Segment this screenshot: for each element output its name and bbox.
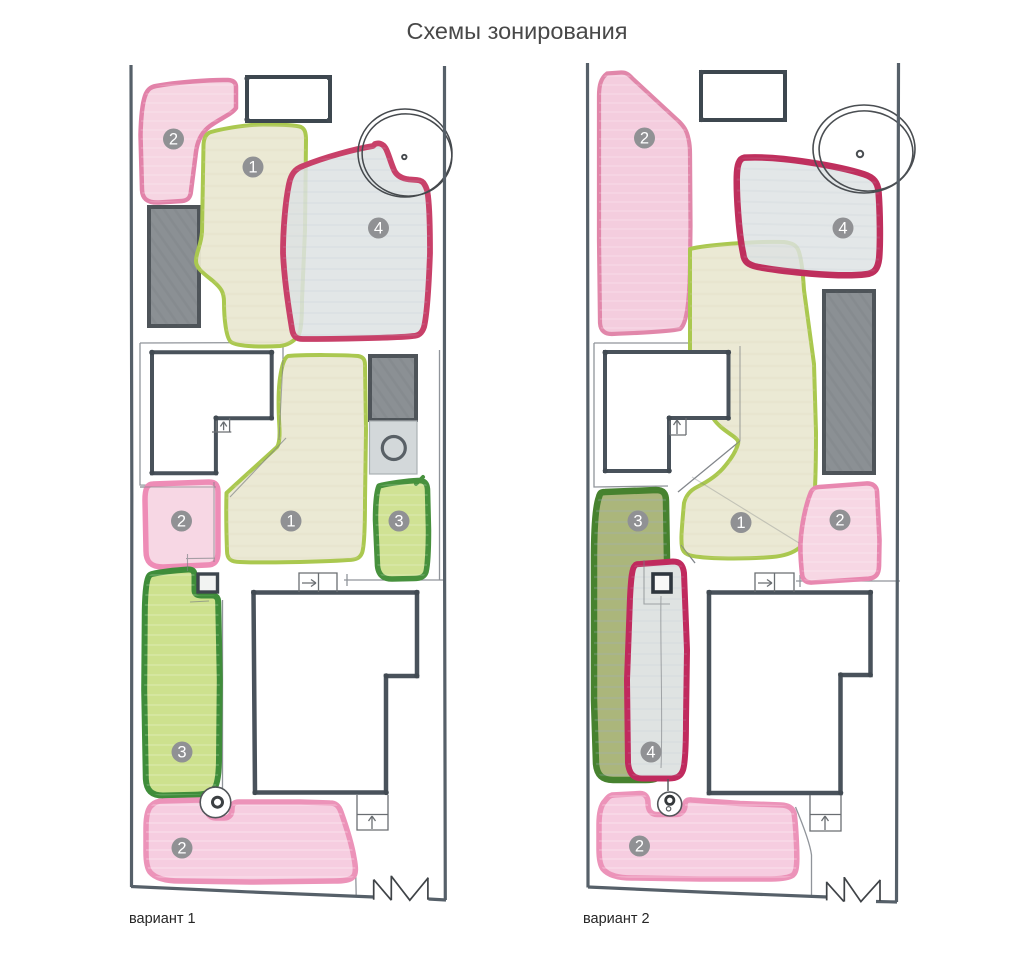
svg-text:2: 2 <box>635 838 644 856</box>
svg-text:1: 1 <box>248 159 257 177</box>
svg-text:2: 2 <box>177 513 186 531</box>
svg-text:4: 4 <box>374 220 383 238</box>
svg-text:2: 2 <box>835 512 844 530</box>
svg-text:4: 4 <box>646 744 655 762</box>
svg-text:1: 1 <box>736 514 745 532</box>
svg-text:1: 1 <box>286 513 295 531</box>
svg-text:4: 4 <box>838 220 847 238</box>
svg-text:2: 2 <box>169 131 178 149</box>
svg-text:3: 3 <box>177 744 186 762</box>
svg-text:3: 3 <box>633 513 642 531</box>
svg-text:2: 2 <box>640 130 649 148</box>
svg-text:3: 3 <box>394 513 403 531</box>
svg-text:2: 2 <box>177 840 186 858</box>
